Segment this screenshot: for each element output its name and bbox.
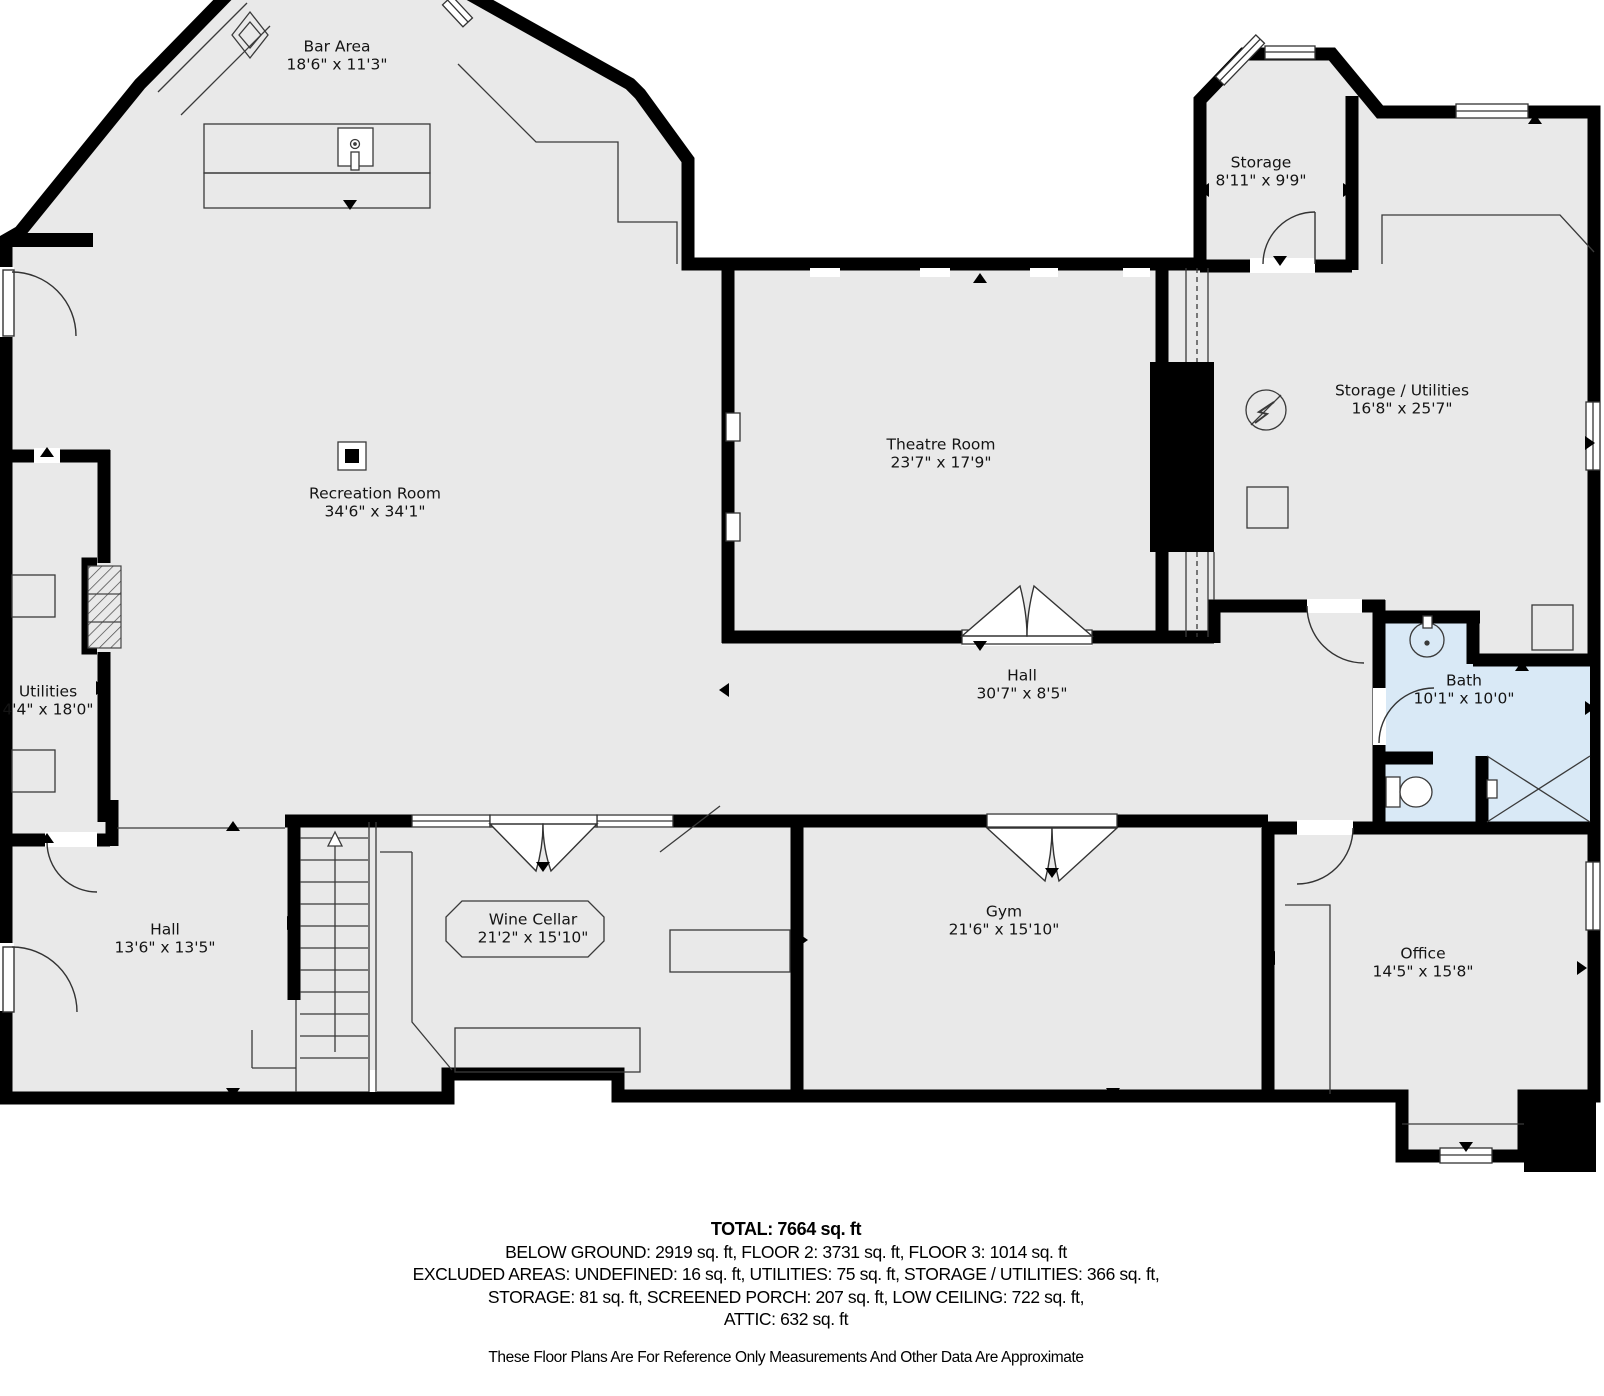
area-summary: TOTAL: 7664 sq. ft BELOW GROUND: 2919 sq…: [0, 1218, 1572, 1331]
total-area: TOTAL: 7664 sq. ft: [0, 1218, 1572, 1241]
area-breakdown-line: STORAGE: 81 sq. ft, SCREENED PORCH: 207 …: [0, 1286, 1572, 1308]
floorplan-svg: [0, 0, 1604, 1396]
floorplan-page: Bar Area18'6" x 11'3"Storage8'11" x 9'9"…: [0, 0, 1604, 1396]
area-breakdown-line: ATTIC: 632 sq. ft: [0, 1308, 1572, 1330]
area-breakdown: BELOW GROUND: 2919 sq. ft, FLOOR 2: 3731…: [0, 1241, 1572, 1331]
area-breakdown-line: BELOW GROUND: 2919 sq. ft, FLOOR 2: 3731…: [0, 1241, 1572, 1263]
disclaimer-text: These Floor Plans Are For Reference Only…: [0, 1349, 1572, 1367]
area-breakdown-line: EXCLUDED AREAS: UNDEFINED: 16 sq. ft, UT…: [0, 1263, 1572, 1285]
water-heater: [86, 562, 121, 650]
